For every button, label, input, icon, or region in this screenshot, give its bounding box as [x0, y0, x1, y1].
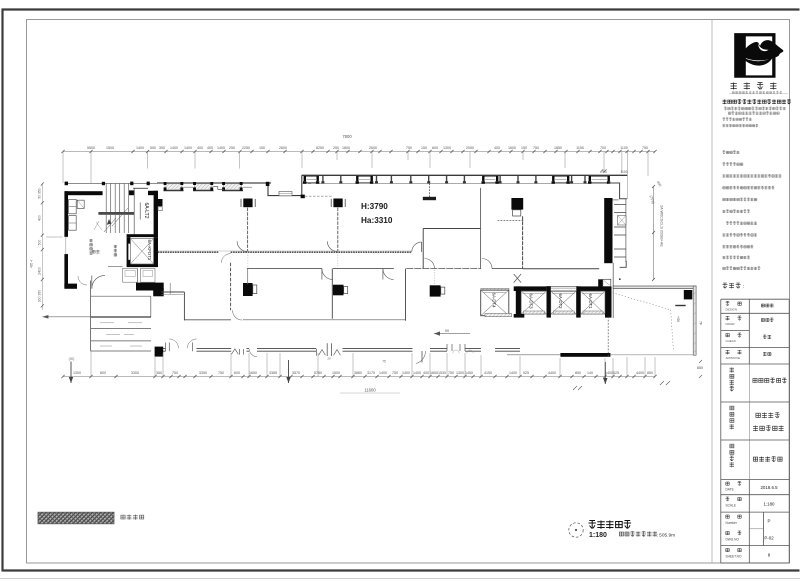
svg-text:1400: 1400 [413, 371, 421, 375]
svg-text:700: 700 [600, 146, 606, 150]
svg-text:8250: 8250 [316, 146, 324, 150]
svg-text:1100: 1100 [620, 170, 627, 174]
svg-text:750: 750 [448, 371, 454, 375]
svg-text:2050: 2050 [466, 146, 474, 150]
svg-text:750: 750 [392, 371, 398, 375]
svg-text:750: 750 [218, 371, 224, 375]
svg-text:1100: 1100 [620, 146, 628, 150]
svg-text:6A-LT2: 6A-LT2 [143, 203, 149, 219]
svg-text:11600: 11600 [364, 388, 376, 393]
svg-text:90: 90 [445, 329, 449, 333]
svg-text:2A W0CSCLS 2SSB+AE: 2A W0CSCLS 2SSB+AE [660, 205, 664, 247]
svg-text:400: 400 [423, 371, 429, 375]
svg-text:3860: 3860 [354, 371, 362, 375]
svg-text:1300: 1300 [73, 371, 81, 375]
svg-text:50 350: 50 350 [38, 188, 42, 198]
svg-text:: 505.9m: : 505.9m [657, 533, 676, 539]
svg-text:SCALE: SCALE [726, 504, 736, 508]
svg-text:6A-DT1: 6A-DT1 [588, 294, 593, 310]
svg-text:1850: 1850 [554, 146, 562, 150]
svg-text:6A-DT3: 6A-DT3 [529, 294, 534, 310]
svg-text:3350: 3350 [199, 371, 207, 375]
svg-text:400: 400 [494, 146, 500, 150]
svg-text:SHEET.NO: SHEET.NO [726, 554, 742, 558]
svg-text:2600: 2600 [369, 146, 377, 150]
svg-text:850: 850 [697, 366, 703, 370]
svg-text:Ha:3310: Ha:3310 [361, 216, 393, 225]
svg-text:6A-KFDT1: 6A-KFDT1 [147, 240, 152, 261]
svg-text:400: 400 [38, 215, 42, 221]
svg-text:1400: 1400 [136, 146, 144, 150]
svg-text:H:3790: H:3790 [361, 202, 388, 211]
svg-text:4400: 4400 [636, 371, 644, 375]
svg-text:1450: 1450 [465, 371, 473, 375]
svg-text:3300: 3300 [131, 371, 139, 375]
svg-text:140: 140 [587, 371, 593, 375]
svg-text:3385: 3385 [269, 371, 277, 375]
svg-text:5500: 5500 [87, 146, 95, 150]
svg-text:1800: 1800 [342, 146, 350, 150]
svg-text:3175: 3175 [367, 371, 375, 375]
svg-text:525: 525 [523, 371, 529, 375]
svg-text:P-02: P-02 [764, 536, 774, 541]
svg-text:250: 250 [229, 146, 235, 150]
svg-text:2250: 2250 [242, 146, 250, 150]
svg-text:400: 400 [197, 146, 203, 150]
svg-text:150: 150 [421, 146, 427, 150]
svg-text:150: 150 [259, 146, 265, 150]
svg-text:28: 28 [327, 357, 331, 361]
svg-text:1150: 1150 [576, 146, 584, 150]
svg-text:350: 350 [156, 371, 162, 375]
svg-text:7800: 7800 [342, 134, 352, 139]
svg-text:DATE: DATE [726, 488, 734, 492]
svg-text:1650: 1650 [430, 371, 438, 375]
svg-text:(20): (20) [69, 357, 75, 361]
svg-text:250: 250 [333, 146, 339, 150]
svg-text:1:180: 1:180 [589, 532, 607, 539]
svg-text:1400: 1400 [509, 371, 517, 375]
svg-text:750: 750 [642, 146, 648, 150]
svg-text:350: 350 [159, 146, 165, 150]
svg-text:1400: 1400 [217, 146, 225, 150]
svg-text:DESIGN: DESIGN [726, 308, 738, 312]
svg-text:1530: 1530 [438, 371, 446, 375]
svg-text:1500: 1500 [106, 146, 114, 150]
svg-text:525: 525 [613, 371, 619, 375]
svg-text:1300: 1300 [456, 371, 464, 375]
svg-text:800: 800 [100, 371, 106, 375]
svg-text:600: 600 [234, 371, 240, 375]
svg-text:6A-DT2: 6A-DT2 [558, 294, 563, 310]
svg-text:1400: 1400 [402, 371, 410, 375]
svg-text:1650: 1650 [249, 371, 257, 375]
svg-text:500: 500 [150, 146, 156, 150]
svg-text:APPROVE: APPROVE [726, 356, 741, 360]
svg-text:1300: 1300 [443, 146, 451, 150]
svg-text:500: 500 [38, 240, 42, 246]
svg-text:2400: 2400 [38, 267, 42, 275]
svg-text:150: 150 [521, 146, 527, 150]
svg-text:DRAW: DRAW [726, 322, 735, 326]
svg-text:DWG.NO: DWG.NO [726, 537, 740, 541]
svg-text:400: 400 [207, 146, 213, 150]
svg-text:485 4: 485 4 [30, 260, 34, 268]
svg-text:600: 600 [432, 146, 438, 150]
svg-text:4400: 4400 [548, 371, 556, 375]
svg-text:850: 850 [575, 371, 581, 375]
svg-text:1400: 1400 [170, 146, 178, 150]
svg-text:750: 750 [172, 371, 178, 375]
svg-text:CHECK: CHECK [726, 339, 737, 343]
svg-text:700: 700 [601, 170, 607, 174]
svg-text::: : [743, 284, 744, 290]
svg-text:1400: 1400 [184, 146, 192, 150]
svg-text:1600: 1600 [508, 146, 516, 150]
svg-text:3570: 3570 [292, 371, 300, 375]
svg-text:1400: 1400 [605, 371, 613, 375]
svg-text:Number: Number [726, 521, 738, 525]
svg-text:300 350: 300 350 [38, 290, 42, 302]
svg-text:850: 850 [647, 371, 653, 375]
svg-text:750: 750 [533, 146, 539, 150]
svg-text:1500: 1500 [332, 371, 340, 375]
svg-text:2600: 2600 [279, 146, 287, 150]
svg-text:1400: 1400 [379, 371, 387, 375]
svg-text:1:180: 1:180 [764, 502, 776, 507]
svg-text:75: 75 [382, 360, 386, 364]
svg-text:5780: 5780 [314, 371, 322, 375]
svg-text:750: 750 [406, 146, 412, 150]
svg-text:4150: 4150 [484, 371, 492, 375]
svg-text:6A-DT4: 6A-DT4 [492, 293, 497, 309]
svg-text:2018.6.5: 2018.6.5 [760, 485, 778, 490]
svg-text:+50: +50 [676, 316, 680, 322]
svg-text:P: P [768, 519, 771, 524]
